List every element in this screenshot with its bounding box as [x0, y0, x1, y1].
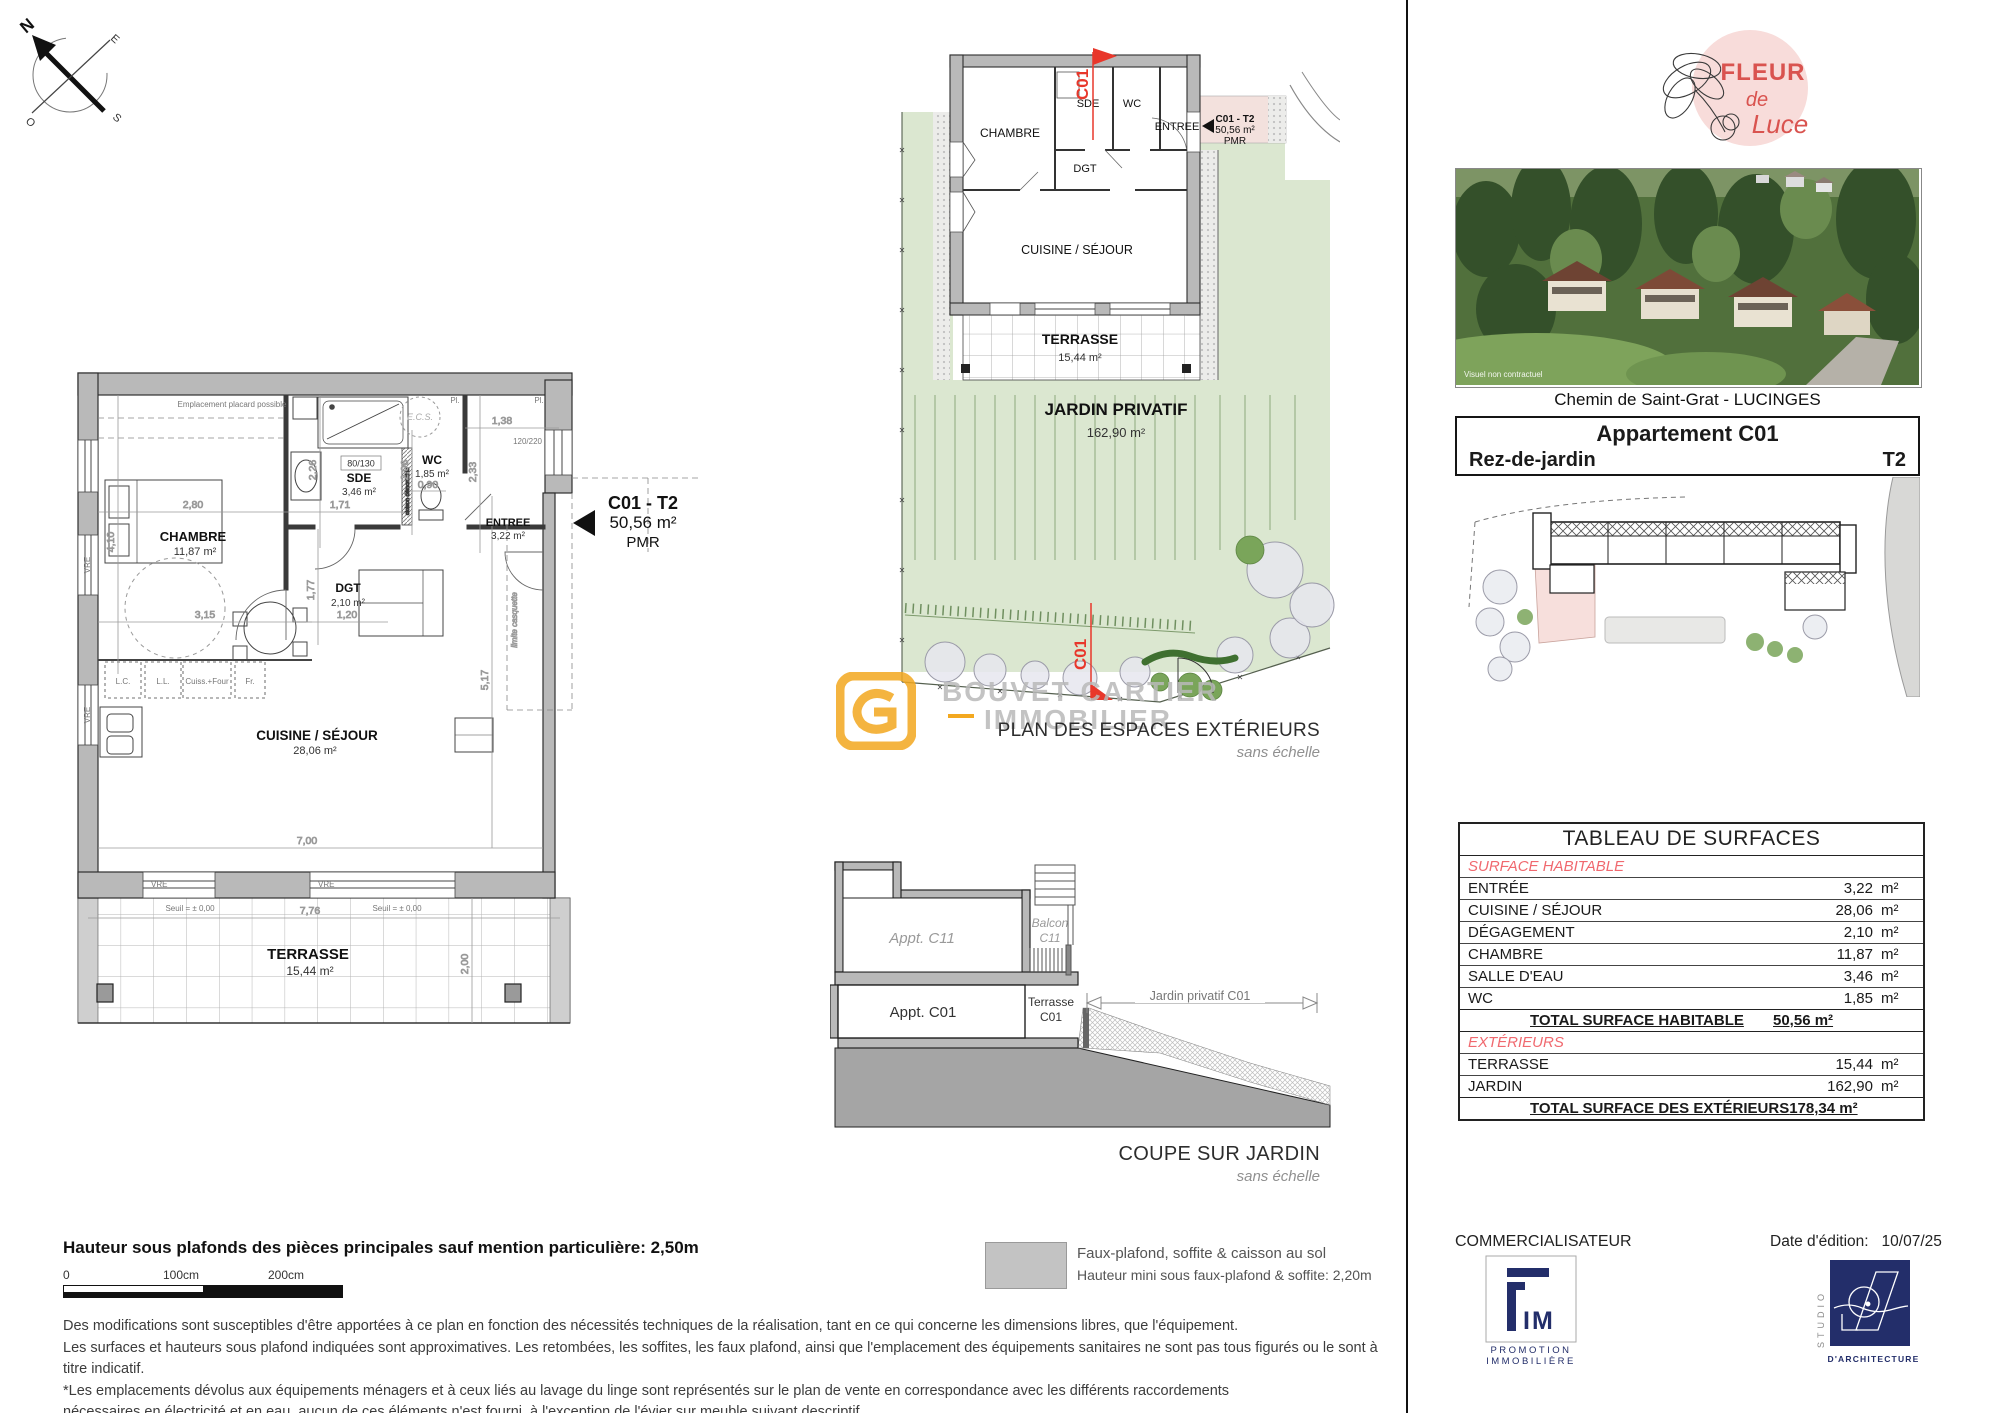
total-value: 50,56 m²	[1773, 1012, 1923, 1029]
dim: 5,17	[479, 670, 491, 691]
seuil-label: Seuil = ± 0,00	[372, 904, 422, 913]
photo-note: Visuel non contractuel	[1464, 370, 1543, 379]
row-unit: m²	[1873, 946, 1923, 963]
room-wc-area: 1,85 m²	[415, 469, 450, 480]
brand-de: de	[1746, 89, 1768, 111]
room-chambre-area: 11,87 m²	[174, 546, 217, 558]
commercialisateur-label: COMMERCIALISATEUR	[1455, 1233, 1632, 1251]
ext-building: CHAMBRE SDE WC ENTREE DGT CUISINE / SÉJO…	[950, 48, 1200, 315]
row-value: 2,10	[1813, 924, 1873, 941]
disclaimer-line: nécessaires en électricité et en eau, au…	[63, 1402, 1393, 1413]
svg-text:✕: ✕	[899, 566, 906, 575]
row-value: 28,06	[1813, 902, 1873, 919]
panel-divider	[1406, 0, 1408, 1413]
coupe-appt-c11: Appt. C11	[888, 930, 955, 947]
disclaimer-text: Des modifications sont susceptibles d'êt…	[63, 1316, 1393, 1413]
room-entree: ENTREE	[486, 517, 531, 529]
total-label: TOTAL SURFACE HABITABLE	[1460, 1012, 1773, 1029]
row-label: ENTRÉE	[1460, 880, 1813, 897]
limite-casquette-label: limite casquette	[510, 592, 519, 648]
date-value: 10/07/25	[1882, 1233, 1942, 1250]
total-label: TOTAL SURFACE DES EXTÉRIEURS	[1460, 1100, 1789, 1117]
svg-text:✕: ✕	[899, 366, 906, 375]
row-value: 162,90	[1813, 1078, 1873, 1095]
dim: 7,76	[300, 905, 321, 917]
brand-luce: Luce	[1752, 109, 1808, 139]
row-unit: m²	[1873, 902, 1923, 919]
row-value: 3,22	[1813, 880, 1873, 897]
coupe-balcon: Balcon	[1032, 916, 1069, 930]
compass-rose-icon: N E S O	[12, 12, 127, 127]
ext-plan-caption-sub: sans échelle	[820, 744, 1320, 761]
pl-label: Pl.	[534, 396, 543, 405]
disclaimer-line: Des modifications sont susceptibles d'êt…	[63, 1316, 1393, 1338]
row-unit: m²	[1873, 990, 1923, 1007]
date-label: Date d'édition:	[1770, 1233, 1869, 1250]
compass-s: S	[110, 111, 123, 125]
surface-table: TABLEAU DE SURFACES SURFACE HABITABLE EN…	[1458, 822, 1925, 1121]
table-row: WC1,85m²	[1460, 987, 1923, 1009]
unit-callout: C01 - T2 50,56 m² PMR	[573, 493, 678, 551]
watermark-dash	[948, 714, 974, 718]
fim-logo: IM	[1485, 1255, 1577, 1343]
row-label: DÉGAGEMENT	[1460, 924, 1813, 941]
coupe-terrasse-c01: C01	[1040, 1010, 1062, 1024]
scale-bar: 0 100cm 200cm	[63, 1268, 343, 1300]
coupe-jardin-label: Jardin privatif C01	[1150, 989, 1251, 1003]
studio-architecture-logo	[1830, 1260, 1910, 1348]
room-wc: WC	[422, 453, 442, 467]
main-walls	[78, 373, 572, 898]
dim: 4,10	[105, 532, 117, 553]
placard-note: Emplacement placard possible	[178, 400, 287, 409]
brand-fleur: FLEUR	[1721, 59, 1806, 86]
room-sde: SDE	[347, 471, 372, 485]
svg-text:✕: ✕	[899, 146, 906, 155]
room-sde-area: 3,46 m²	[342, 487, 377, 498]
compass-o: O	[23, 115, 38, 127]
project-photo: Visuel non contractuel	[1455, 168, 1922, 388]
ext-room-wc: WC	[1123, 98, 1141, 110]
jardin-area: 162,90 m²	[1087, 425, 1146, 440]
ext-plan-caption: PLAN DES ESPACES EXTÉRIEURS	[820, 720, 1320, 742]
row-label: JARDIN	[1460, 1078, 1813, 1095]
compass-e: E	[108, 32, 121, 46]
ext-unit-code: C01 - T2	[1216, 114, 1255, 125]
scale-0: 0	[63, 1268, 70, 1282]
unit-pmr: PMR	[626, 534, 660, 551]
project-address: Chemin de Saint-Grat - LUCINGES	[1455, 390, 1920, 410]
compass-n: N	[16, 15, 38, 37]
apartment-level: Rez-de-jardin	[1469, 449, 1596, 472]
section-habitable: SURFACE HABITABLE	[1460, 858, 1923, 875]
row-label: CUISINE / SÉJOUR	[1460, 902, 1813, 919]
table-total-row: TOTAL SURFACE HABITABLE50,56 m²	[1460, 1009, 1923, 1031]
jardin-name: JARDIN PRIVATIF	[1045, 400, 1188, 419]
ext-room-cuisine: CUISINE / SÉJOUR	[1021, 242, 1133, 257]
fim-promo: PROMOTION IMMOBILIÈRE	[1472, 1345, 1590, 1367]
dim: 0,90	[418, 479, 439, 491]
total-value: 178,34 m²	[1789, 1100, 1923, 1117]
svg-text:✕: ✕	[899, 306, 906, 315]
row-unit: m²	[1873, 924, 1923, 941]
vre-label: VRE	[151, 880, 167, 889]
row-unit: m²	[1873, 880, 1923, 897]
row-label: WC	[1460, 990, 1813, 1007]
scale-100: 100cm	[163, 1268, 199, 1282]
apartment-title: Appartement C01	[1457, 421, 1918, 447]
appliance-ll: L.L.	[156, 677, 169, 686]
studio-vertical-label: STUDIO	[1816, 1262, 1826, 1348]
unit-area: 50,56 m²	[609, 513, 676, 532]
room-cuisine: CUISINE / SÉJOUR	[256, 728, 378, 743]
apartment-info-box: Appartement C01 Rez-de-jardin T2	[1455, 416, 1920, 476]
table-row: TERRASSE15,44m²	[1460, 1053, 1923, 1075]
dim: 2,80	[183, 499, 204, 511]
studio-architecture-label: D'ARCHITECTURE	[1826, 1354, 1921, 1364]
dim: 1,38	[492, 415, 513, 427]
ext-terrace: TERRASSE 15,44 m²	[961, 315, 1200, 380]
coupe-caption-sub: sans échelle	[840, 1168, 1320, 1185]
dim: 2,26	[307, 460, 319, 481]
svg-text:✕: ✕	[899, 636, 906, 645]
row-value: 1,85	[1813, 990, 1873, 1007]
apartment-type: T2	[1883, 449, 1906, 472]
room-cuisine-area: 28,06 m²	[293, 745, 337, 757]
room-terrasse: TERRASSE	[267, 946, 349, 963]
ext-unit-pmr: PMR	[1224, 136, 1246, 147]
disclaimer-line: *Les emplacements dévolus aux équipement…	[63, 1381, 1393, 1403]
table-total-row: TOTAL SURFACE DES EXTÉRIEURS178,34 m²	[1460, 1097, 1923, 1119]
legend-line1: Faux-plafond, soffite & caisson au sol	[1077, 1245, 1326, 1262]
coupe-balcon-c11: C11	[1039, 931, 1060, 945]
row-unit: m²	[1873, 968, 1923, 985]
ext-terrasse-area: 15,44 m²	[1058, 352, 1102, 364]
appliance-lc: L.C.	[116, 677, 131, 686]
main-floor-plan: VRE VRE VRE VRE Seuil = ± 0,00 Seuil = ±…	[55, 290, 720, 1035]
legend-line2: Hauteur mini sous faux-plafond & soffite…	[1077, 1267, 1372, 1283]
row-value: 15,44	[1813, 1056, 1873, 1073]
dim: 1,77	[305, 580, 317, 601]
row-unit: m²	[1873, 1056, 1923, 1073]
vre-label: VRE	[318, 880, 334, 889]
room-entree-area: 3,22 m²	[491, 531, 526, 542]
svg-text:✕: ✕	[899, 496, 906, 505]
svg-text:✕: ✕	[899, 246, 906, 255]
fim-mark: IM	[1523, 1307, 1555, 1335]
ext-room-chambre: CHAMBRE	[980, 126, 1040, 140]
row-unit: m²	[1873, 1078, 1923, 1095]
table-row: CUISINE / SÉJOUR28,06m²	[1460, 899, 1923, 921]
scale-200: 200cm	[268, 1268, 304, 1282]
room-chambre: CHAMBRE	[160, 529, 227, 544]
ext-terrasse-name: TERRASSE	[1042, 331, 1118, 347]
entry-walk: C01 - T2 50,56 m² PMR	[1198, 96, 1286, 147]
table-row: ENTRÉE3,22m²	[1460, 877, 1923, 899]
ext-room-dgt: DGT	[1073, 163, 1097, 175]
dim: 2,06	[399, 460, 411, 481]
disclaimer-line: Les surfaces et hauteurs sous plafond in…	[63, 1338, 1393, 1381]
coupe-caption: COUPE SUR JARDIN	[840, 1143, 1320, 1166]
ecs-label: E.C.S.	[407, 412, 433, 422]
fim-promo-line2: IMMOBILIÈRE	[1472, 1356, 1590, 1367]
table-row: JARDIN162,90m²	[1460, 1075, 1923, 1097]
fleur-de-luce-logo: FLEUR de Luce	[1635, 18, 1835, 158]
dim: 2,33	[467, 462, 479, 483]
legend-swatch	[985, 1242, 1067, 1289]
svg-text:✕: ✕	[899, 196, 906, 205]
surface-table-title: TABLEAU DE SURFACES	[1460, 824, 1923, 856]
exterior-plan: ✕✕✕✕ ✕✕✕✕✕ ✕✕✕✕ ✕✕✕	[690, 30, 1340, 770]
sde-size: 80/130	[347, 459, 375, 469]
room-terrasse-area: 15,44 m²	[286, 964, 333, 978]
table-row: CHAMBRE11,87m²	[1460, 943, 1923, 965]
appliance-cuiss: Cuiss.+Four	[185, 677, 229, 686]
row-label: SALLE D'EAU	[1460, 968, 1813, 985]
vre-label: VRE	[83, 557, 92, 573]
seuil-label: Seuil = ± 0,00	[165, 904, 215, 913]
dim: 1,71	[330, 499, 351, 511]
appliance-fr: Fr.	[245, 677, 254, 686]
row-value: 3,46	[1813, 968, 1873, 985]
marker-c01: C01	[1073, 69, 1092, 100]
svg-text:✕: ✕	[1237, 673, 1244, 682]
row-label: CHAMBRE	[1460, 946, 1813, 963]
ceiling-height-note: Hauteur sous plafonds des pièces princip…	[63, 1238, 699, 1258]
dim: 2,00	[459, 954, 471, 975]
dim: 3,15	[195, 609, 216, 621]
row-label: TERRASSE	[1460, 1056, 1813, 1073]
plan-sheet: N E S O	[0, 0, 2000, 1413]
window-size-label: 120/220	[513, 437, 542, 446]
fim-promo-line1: PROMOTION	[1472, 1345, 1590, 1356]
edition-date: Date d'édition: 10/07/25	[1770, 1233, 1942, 1251]
section-exterieurs: EXTÉRIEURS	[1460, 1034, 1923, 1051]
table-row: SALLE D'EAU3,46m²	[1460, 965, 1923, 987]
dim: 1,20	[337, 609, 358, 621]
fixtures	[98, 397, 543, 757]
pl-label: Pl.	[450, 396, 459, 405]
table-row: DÉGAGEMENT2,10m²	[1460, 921, 1923, 943]
coupe-appt-c01: Appt. C01	[890, 1004, 957, 1021]
row-value: 11,87	[1813, 946, 1873, 963]
dim: 7,00	[297, 835, 318, 847]
road-corner	[1285, 30, 1340, 180]
site-plan	[1455, 477, 1920, 697]
marker-c01: C01	[1071, 639, 1090, 670]
unit-code: C01 - T2	[608, 493, 678, 513]
ext-room-entree: ENTREE	[1155, 121, 1200, 133]
coupe-terrasse: Terrasse	[1028, 995, 1074, 1009]
vre-label: VRE	[83, 707, 92, 723]
ext-unit-area: 50,56 m²	[1215, 125, 1255, 136]
room-dgt: DGT	[335, 581, 361, 595]
coupe-section: Appt. C11 Balcon C11 Appt. C01 Terrasse …	[830, 850, 1340, 1140]
svg-text:✕: ✕	[899, 426, 906, 435]
room-dgt-area: 2,10 m²	[331, 598, 366, 609]
